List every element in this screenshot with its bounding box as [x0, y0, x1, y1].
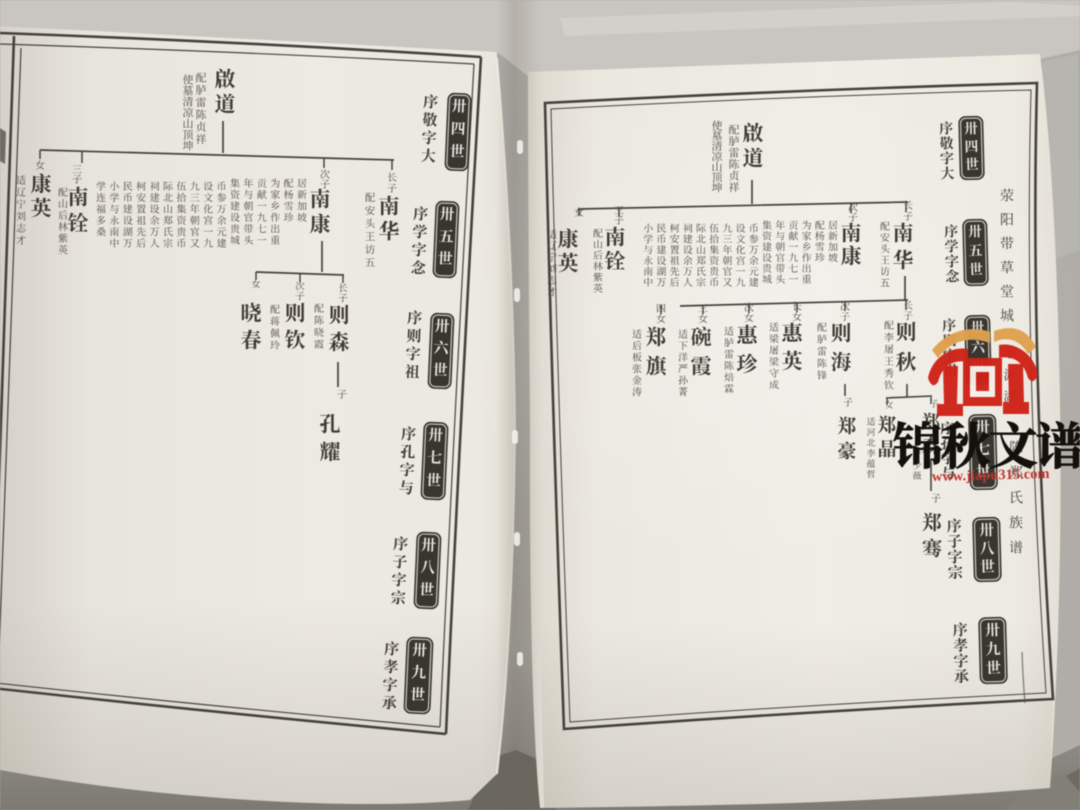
- svg-text:www.jiapu315.com: www.jiapu315.com: [932, 466, 1050, 485]
